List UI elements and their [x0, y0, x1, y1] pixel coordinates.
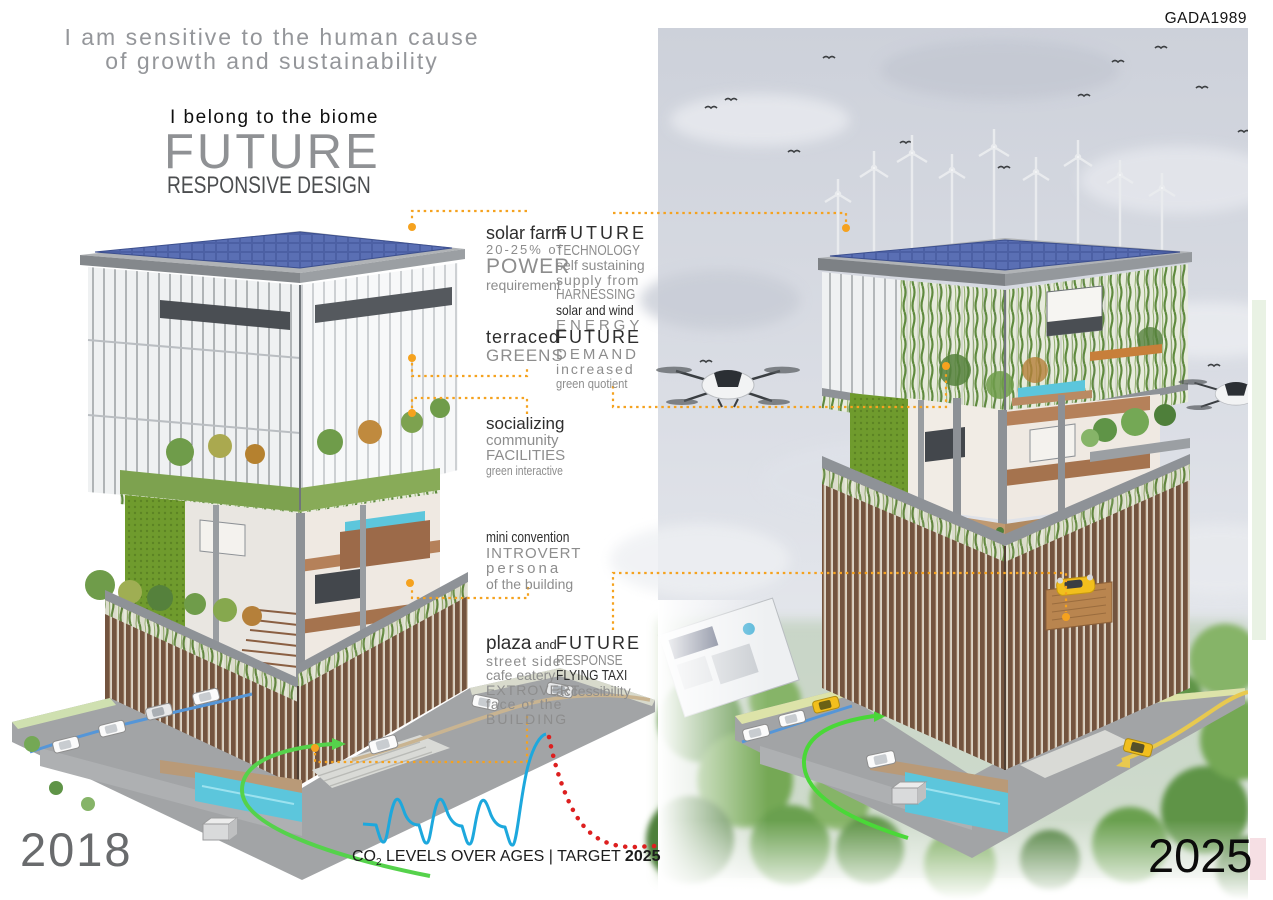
- tagline-line2: of growth and sustainability: [26, 50, 518, 74]
- caption-text: LEVELS OVER AGES | TARGET: [382, 848, 625, 865]
- annotation-line: TECHNOLOGY: [556, 243, 640, 259]
- annotation-line: community: [486, 433, 582, 449]
- annotation-line: solar and wind: [556, 303, 634, 318]
- tagline-line1: I am sensitive to the human cause: [26, 26, 518, 50]
- annotation-line: HARNESSING: [556, 287, 635, 303]
- watermark: GADA1989: [1165, 10, 1247, 28]
- annotation-future-response: FUTURE RESPONSE FLYING TAXI accessibilit…: [556, 634, 645, 698]
- annotation-future-technology: FUTURE TECHNOLOGY self sustaining supply…: [556, 224, 661, 333]
- annotation-line: and: [531, 637, 556, 652]
- annotation-line: mini convention: [486, 530, 569, 546]
- annotation-line: increased: [556, 362, 641, 377]
- annotation-line: self sustaining: [556, 258, 661, 273]
- page-subtitle: RESPONSIVE DESIGN: [167, 172, 422, 200]
- annotation-line: FUTURE: [556, 634, 645, 653]
- annotation-line: green interactive: [486, 464, 563, 478]
- annotation-mini-convention: mini convention INTROVERT persona of the…: [486, 530, 590, 591]
- annotation-line: BUILDING: [486, 712, 580, 727]
- annotation-line: INTROVERT: [486, 546, 590, 562]
- co2-chart-caption: CO2 LEVELS OVER AGES | TARGET 2025: [352, 848, 656, 868]
- annotation-line: FUTURE: [556, 328, 641, 347]
- annotation-line: GREENS: [486, 347, 564, 365]
- annotation-line: FUTURE: [556, 224, 661, 243]
- caption-co: CO: [352, 848, 376, 865]
- annotation-terraced-greens: terraced GREENS: [486, 328, 564, 364]
- annotation-line: plaza: [486, 633, 531, 654]
- annotation-line: green quotient: [556, 377, 627, 391]
- annotation-line: supply from: [556, 273, 661, 288]
- year-label-2025: 2025: [1148, 828, 1253, 883]
- annotation-line: persona: [486, 561, 590, 577]
- annotation-line: FLYING TAXI: [556, 668, 627, 684]
- annotation-line: DEMAND: [556, 347, 641, 363]
- annotation-line: face of the: [486, 697, 580, 712]
- annotation-future-demand: FUTURE DEMAND increased green quotient: [556, 328, 641, 390]
- annotation-line: FACILITIES: [486, 448, 582, 464]
- photo-2025: [610, 0, 1273, 900]
- annotation-line: socializing: [486, 415, 582, 433]
- annotation-line: RESPONSE: [556, 653, 623, 669]
- year-label-2018: 2018: [20, 822, 133, 877]
- leader-solar-left: [412, 211, 527, 222]
- caption-target-year: 2025: [625, 848, 661, 865]
- annotation-line: accessibility: [556, 684, 645, 699]
- glass-block-2018: [88, 263, 458, 522]
- annotation-line: of the building: [486, 577, 590, 592]
- annotation-socializing: socializing community FACILITIES green i…: [486, 415, 582, 477]
- page-subtitle-text: RESPONSIVE DESIGN: [167, 172, 371, 200]
- tagline: I am sensitive to the human cause of gro…: [26, 26, 518, 74]
- annotation-line: terraced: [486, 328, 564, 347]
- presentation-board: GADA1989 I am sensitive to the human cau…: [0, 0, 1273, 900]
